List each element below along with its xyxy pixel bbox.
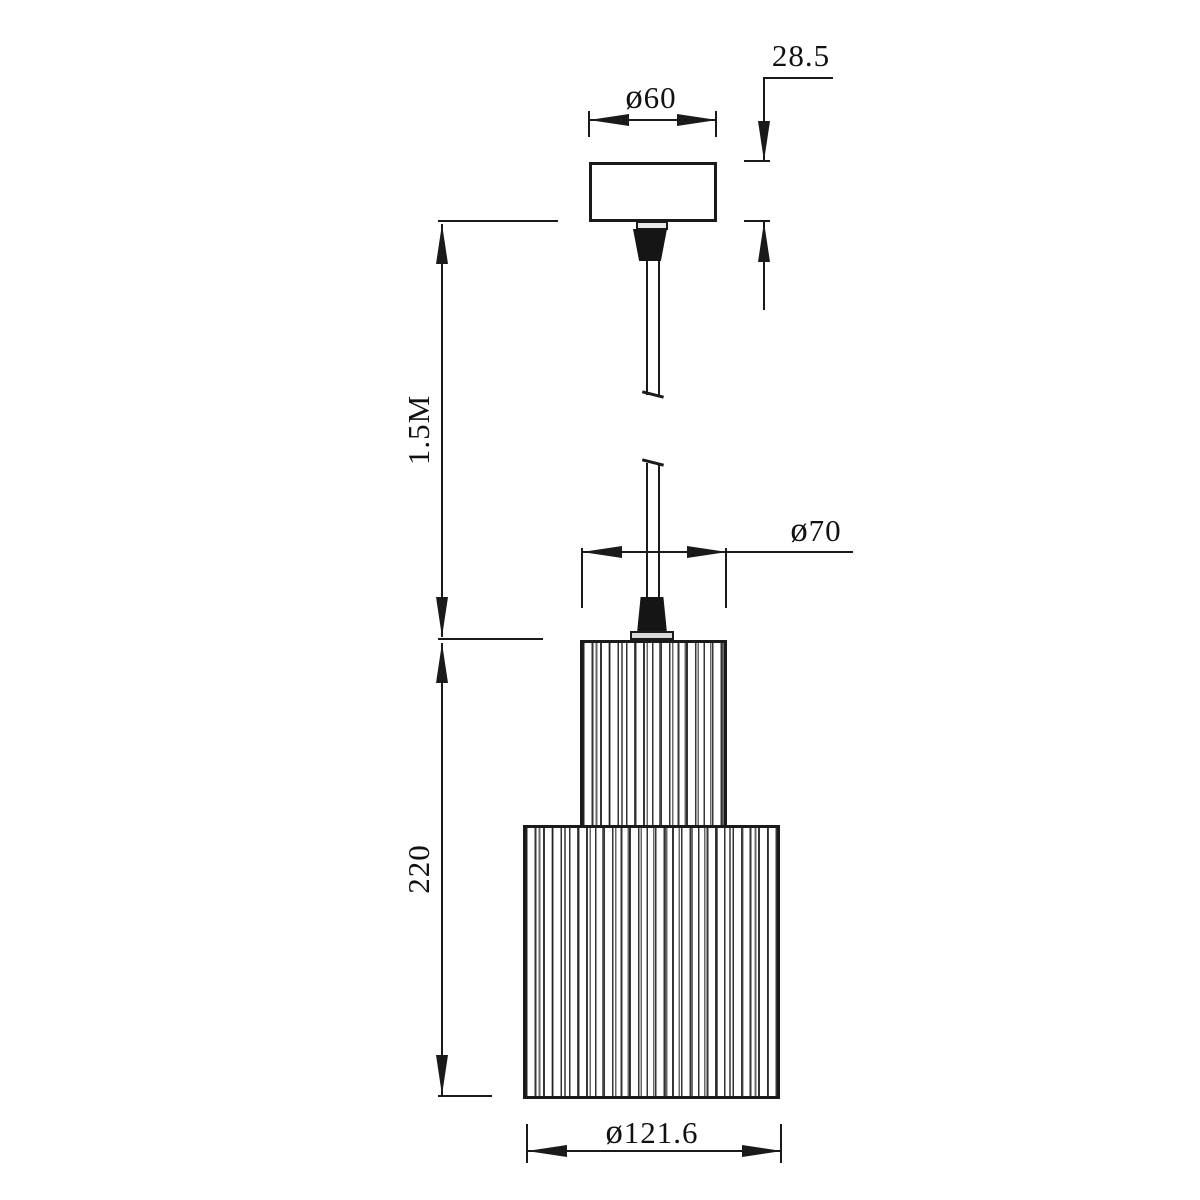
suspension-cord-upper-segment [646, 261, 660, 395]
dim-shade-height-line [441, 643, 443, 1095]
ext-line-shade-bottom [438, 1095, 492, 1097]
dim-canopy-diameter-ext-right [715, 111, 717, 137]
dim-shade-bottom-diameter-label: ø121.6 [605, 1112, 698, 1152]
dim-canopy-height-label: 28.5 [772, 38, 830, 74]
dim-canopy-height-leader [763, 77, 833, 79]
dim-shade-height-arrow-down [436, 1055, 448, 1095]
dim-cord-length-label: 1.5M [401, 395, 437, 465]
technical-drawing-canvas: ø60 28.5 1.5M 220 ø70 ø121.6 [0, 0, 1200, 1200]
lower-ribbed-shade [523, 825, 780, 1099]
dim-canopy-diameter-arrow-left [589, 114, 629, 126]
dim-canopy-diameter-ext-left [588, 111, 590, 137]
dim-shade-height-arrow-up [436, 643, 448, 683]
dim-canopy-height-ext-top [744, 160, 770, 162]
dim-shade-height-label: 220 [401, 844, 437, 894]
ext-line-shade-top [438, 638, 543, 640]
upper-ribbed-shade [580, 640, 727, 826]
dim-shade-bottom-diameter-arrow-right [742, 1145, 782, 1157]
dim-shade-top-diameter-ext-right [725, 548, 727, 608]
dim-shade-top-diameter-label: ø70 [790, 510, 841, 550]
dim-shade-top-diameter-arrow-left [582, 546, 622, 558]
dim-canopy-diameter-arrow-right [677, 114, 717, 126]
canopy-strain-relief-cone [633, 229, 667, 261]
dim-canopy-height-line-bottom [763, 222, 765, 310]
dim-shade-bottom-diameter-arrow-left [527, 1145, 567, 1157]
ceiling-canopy [589, 162, 717, 222]
canopy-cord-collar [636, 221, 668, 230]
dim-shade-top-diameter-arrow-right [687, 546, 727, 558]
dim-cord-length-line [441, 224, 443, 637]
dim-canopy-height-arrow-down [758, 121, 770, 161]
dim-shade-bottom-diameter-ext-right [780, 1124, 782, 1163]
dim-canopy-diameter-label: ø60 [625, 77, 676, 117]
dim-shade-bottom-diameter-ext-left [526, 1124, 528, 1163]
dim-cord-length-arrow-down [436, 597, 448, 637]
shade-cord-flange [630, 631, 674, 640]
ext-line-canopy-bottom [438, 220, 558, 222]
suspension-cord-lower-segment [646, 463, 660, 599]
shade-strain-relief-cone [637, 597, 667, 633]
dim-canopy-height-ext-bottom [744, 220, 770, 222]
dim-shade-top-diameter-ext-left [581, 548, 583, 608]
dim-cord-length-arrow-up [436, 224, 448, 264]
